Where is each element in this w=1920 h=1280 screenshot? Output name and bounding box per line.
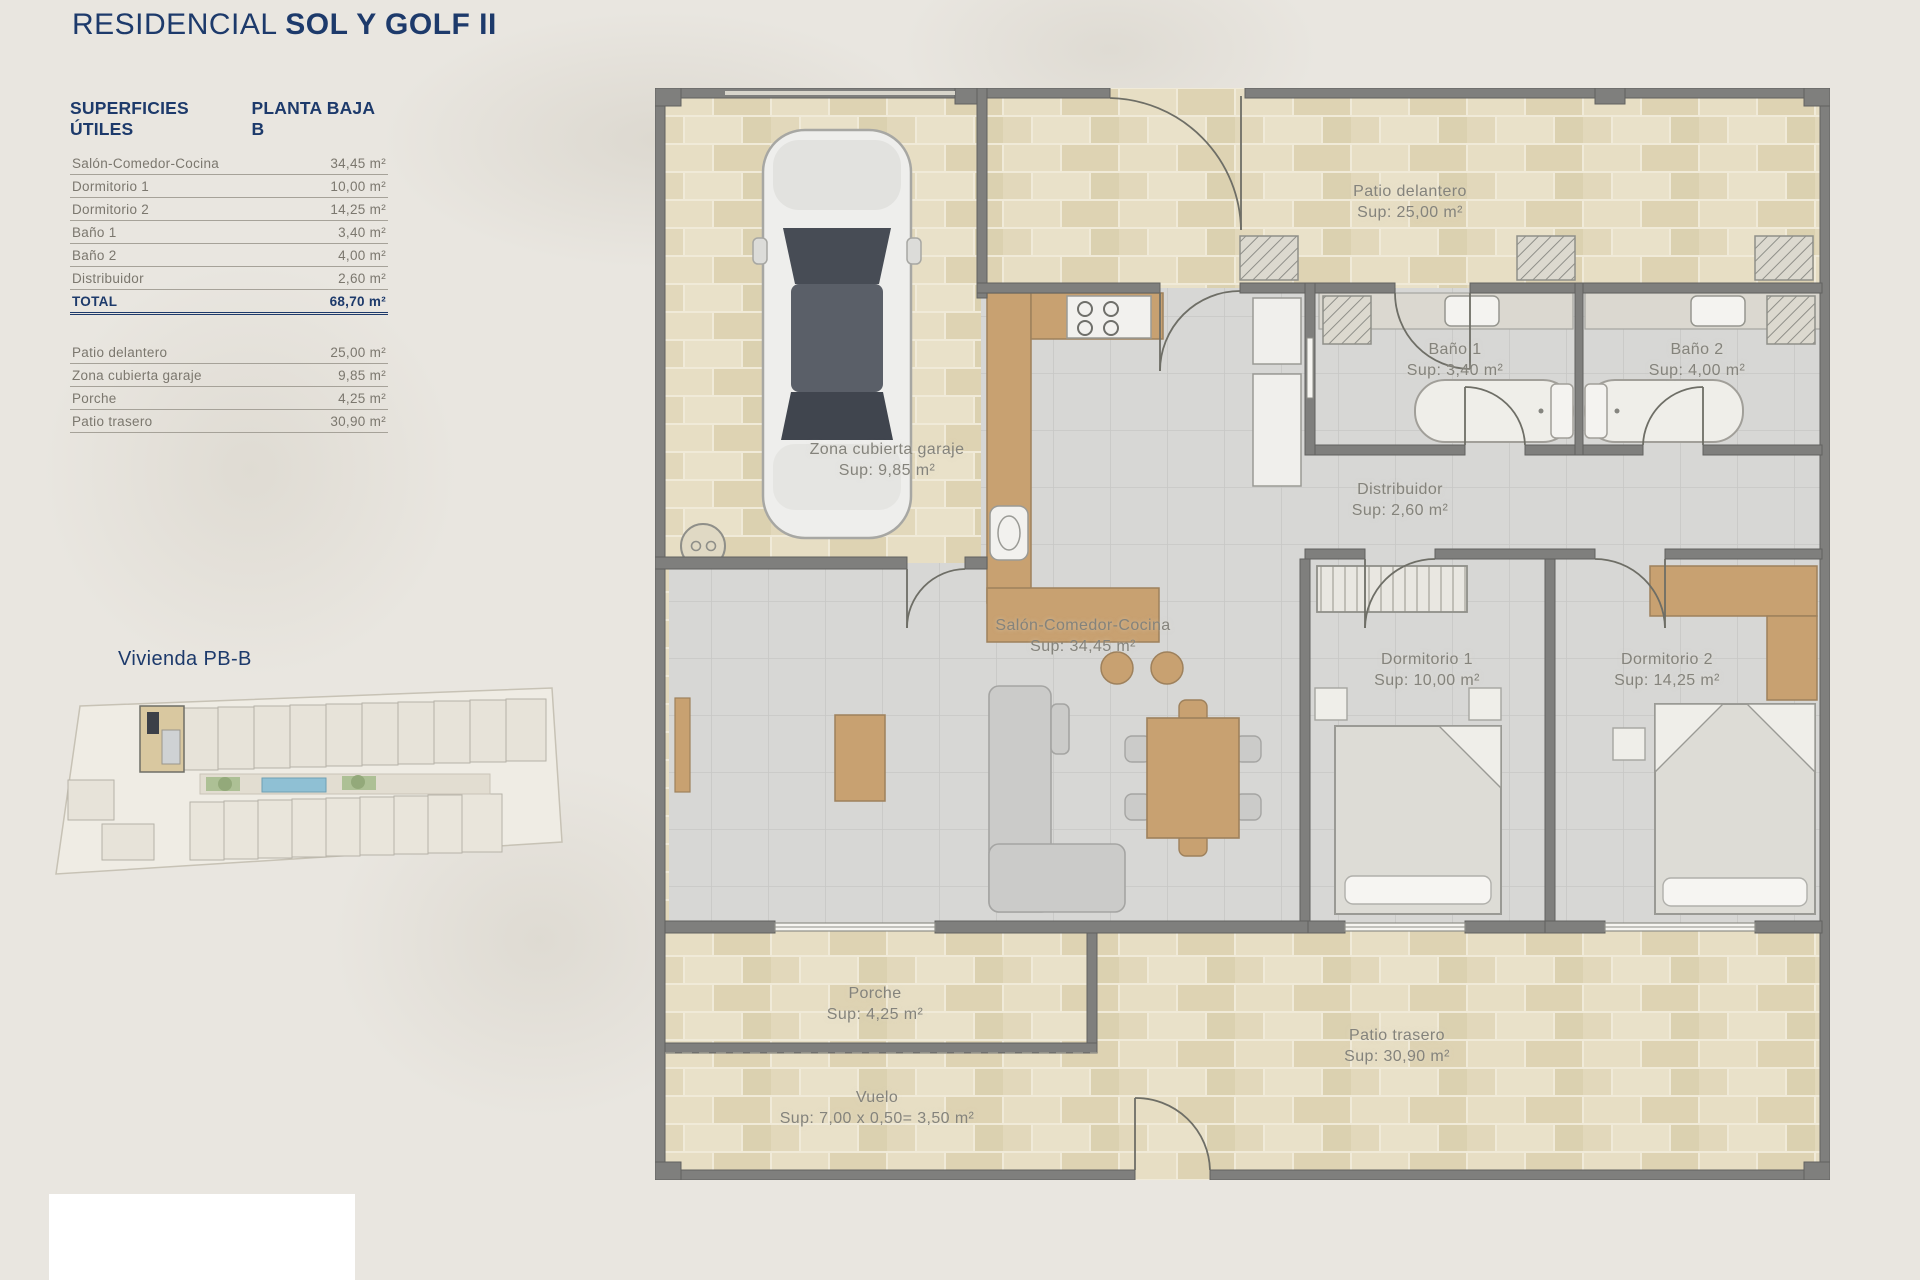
- site-plan-title: Vivienda PB-B: [118, 648, 252, 671]
- table-row: Dormitorio 1 10,00 m²: [70, 175, 388, 198]
- row-label: Distribuidor: [72, 271, 144, 286]
- site-highlighted-unit: [140, 706, 184, 772]
- row-value: 30,90 m²: [330, 414, 386, 429]
- coffee-table: [835, 715, 885, 801]
- table-row: Baño 1 3,40 m²: [70, 221, 388, 244]
- room-label-patio-trasero: Patio trasero Sup: 30,90 m²: [1344, 1026, 1450, 1068]
- total-value: 68,70 m²: [330, 294, 386, 309]
- room-label-bano-2: Baño 2 Sup: 4,00 m²: [1649, 340, 1745, 382]
- room-label-bano-1: Baño 1 Sup: 3,40 m²: [1407, 340, 1503, 382]
- row-label: Salón-Comedor-Cocina: [72, 156, 219, 171]
- room-label-garaje: Zona cubierta garaje Sup: 9,85 m²: [810, 440, 965, 482]
- table-row: Patio delantero 25,00 m²: [70, 341, 388, 364]
- table-row-total: TOTAL 68,70 m²: [70, 290, 388, 315]
- row-value: 4,25 m²: [338, 391, 386, 406]
- room-label-salon: Salón-Comedor-Cocina Sup: 34,45 m²: [995, 616, 1170, 658]
- site-plan-thumbnail: [50, 672, 566, 882]
- row-label: Dormitorio 1: [72, 179, 149, 194]
- table-row: Distribuidor 2,60 m²: [70, 267, 388, 290]
- kitchen-sink: [990, 506, 1028, 560]
- tv-unit: [675, 698, 690, 792]
- table-row: Salón-Comedor-Cocina 34,45 m²: [70, 152, 388, 175]
- kitchen-appliances: [1253, 298, 1301, 486]
- surface-table: SUPERFICIES ÚTILES PLANTA BAJA B Salón-C…: [70, 98, 388, 433]
- site-units-bottom: [190, 794, 502, 860]
- table-gap: [70, 315, 388, 341]
- header-planta: PLANTA BAJA B: [251, 98, 388, 140]
- row-value: 14,25 m²: [330, 202, 386, 217]
- row-value: 25,00 m²: [330, 345, 386, 360]
- table-row: Baño 2 4,00 m²: [70, 244, 388, 267]
- floor-plan: Patio delantero Sup: 25,00 m² Zona cubie…: [655, 88, 1830, 1180]
- row-label: Dormitorio 2: [72, 202, 149, 217]
- total-label: TOTAL: [72, 294, 117, 309]
- logo-placeholder: [49, 1194, 355, 1280]
- row-value: 34,45 m²: [330, 156, 386, 171]
- row-value: 9,85 m²: [338, 368, 386, 383]
- ac-unit: [1240, 236, 1298, 280]
- surface-table-header: SUPERFICIES ÚTILES PLANTA BAJA B: [70, 98, 388, 140]
- table-row: Dormitorio 2 14,25 m²: [70, 198, 388, 221]
- row-label: Zona cubierta garaje: [72, 368, 202, 383]
- stove: [1067, 296, 1151, 338]
- row-value: 3,40 m²: [338, 225, 386, 240]
- ac-unit: [1517, 236, 1575, 280]
- row-label: Porche: [72, 391, 117, 406]
- page-title: RESIDENCIAL SOL Y GOLF II: [72, 8, 497, 42]
- room-label-porche: Porche Sup: 4,25 m²: [827, 984, 923, 1026]
- room-label-vuelo: Vuelo Sup: 7,00 x 0,50= 3,50 m²: [780, 1088, 975, 1130]
- table-row: Patio trasero 30,90 m²: [70, 410, 388, 433]
- row-label: Baño 1: [72, 225, 117, 240]
- row-label: Baño 2: [72, 248, 117, 263]
- row-label: Patio trasero: [72, 414, 152, 429]
- room-label-dormitorio-2: Dormitorio 2 Sup: 14,25 m²: [1614, 650, 1720, 692]
- row-value: 4,00 m²: [338, 248, 386, 263]
- table-row: Porche 4,25 m²: [70, 387, 388, 410]
- room-label-distribuidor: Distribuidor Sup: 2,60 m²: [1352, 480, 1448, 522]
- ac-unit: [1755, 236, 1813, 280]
- table-row: Zona cubierta garaje 9,85 m²: [70, 364, 388, 387]
- row-value: 2,60 m²: [338, 271, 386, 286]
- title-main: SOL Y GOLF II: [285, 8, 497, 41]
- garage-door: [725, 91, 955, 95]
- site-units-top: [182, 699, 546, 770]
- room-label-patio-delantero: Patio delantero Sup: 25,00 m²: [1353, 182, 1467, 224]
- row-value: 10,00 m²: [330, 179, 386, 194]
- site-plan-svg: [50, 672, 566, 882]
- row-label: Patio delantero: [72, 345, 167, 360]
- header-superficies: SUPERFICIES ÚTILES: [70, 98, 251, 140]
- site-pool: [262, 778, 326, 792]
- room-label-dormitorio-1: Dormitorio 1 Sup: 10,00 m²: [1374, 650, 1480, 692]
- title-prefix: RESIDENCIAL: [72, 8, 276, 41]
